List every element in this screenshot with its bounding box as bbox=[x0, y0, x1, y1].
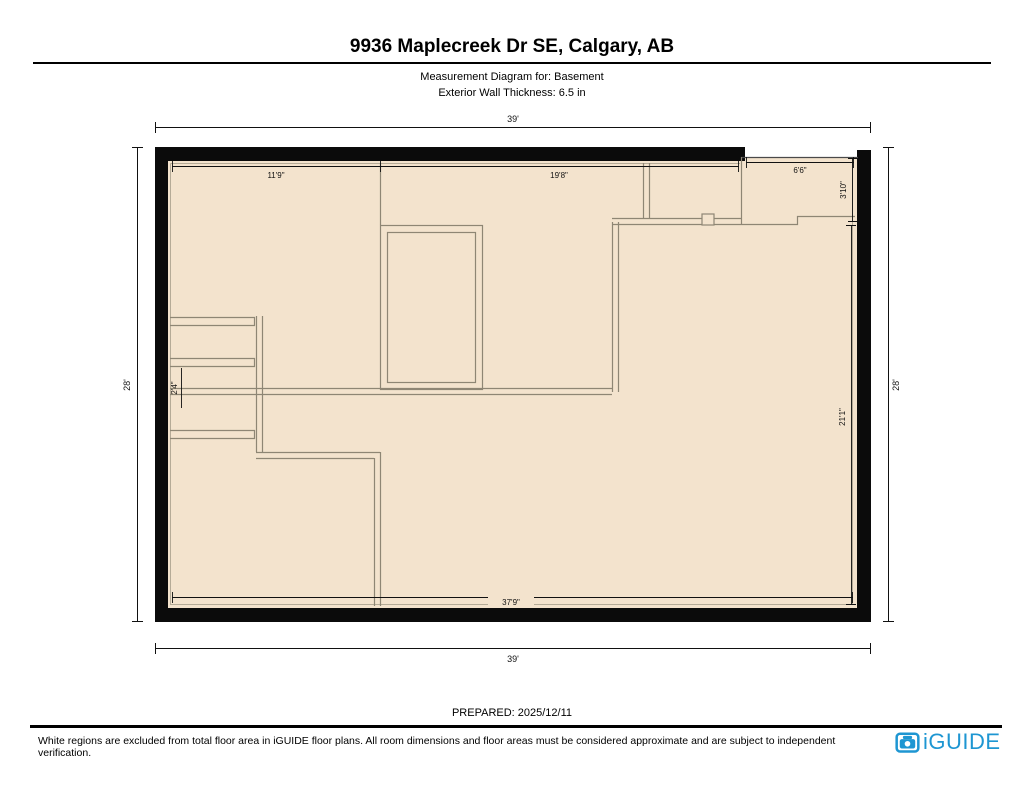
prepared-date: PREPARED: 2025/12/11 bbox=[0, 707, 1024, 719]
dim-line-bottom-outer bbox=[155, 643, 871, 654]
iguide-logo-icon bbox=[895, 730, 920, 755]
dim-label-left-outer: 28' bbox=[122, 379, 132, 391]
wall-top bbox=[155, 147, 745, 161]
dim-label-top-outer: 39' bbox=[507, 114, 519, 124]
wall-bottom bbox=[155, 608, 871, 622]
dim-label-right-outer: 28' bbox=[891, 379, 901, 391]
disclaimer-text: White regions are excluded from total fl… bbox=[38, 735, 838, 759]
dim-label-top-middle: 19'8" bbox=[550, 171, 568, 180]
dim-label-bottom-outer: 39' bbox=[507, 654, 519, 664]
footer-divider bbox=[30, 725, 1002, 728]
iguide-logo: iGUIDE bbox=[895, 729, 1001, 755]
dim-label-stair: 2'4" bbox=[170, 381, 179, 394]
measurement-diagram-page: 9936 Maplecreek Dr SE, Calgary, AB Measu… bbox=[0, 0, 1024, 791]
door-jamb bbox=[702, 214, 714, 225]
wall-left bbox=[155, 147, 168, 622]
dim-label-right-inner: 21'1" bbox=[838, 408, 847, 426]
iguide-logo-text: iGUIDE bbox=[923, 729, 1001, 755]
dim-label-top-left: 11'9" bbox=[267, 171, 284, 180]
dim-label-notch-height: 3'10" bbox=[839, 181, 848, 199]
dim-line-left-outer bbox=[132, 147, 143, 622]
floorplan-svg: 39' 39' 28' 28' 11'9" 19'8" 6'6" 3'10" 2… bbox=[0, 0, 1024, 791]
wall-right bbox=[857, 150, 871, 622]
dim-label-notch-width: 6'6" bbox=[793, 166, 806, 175]
dim-label-bottom-inner: 37'9" bbox=[502, 598, 520, 607]
